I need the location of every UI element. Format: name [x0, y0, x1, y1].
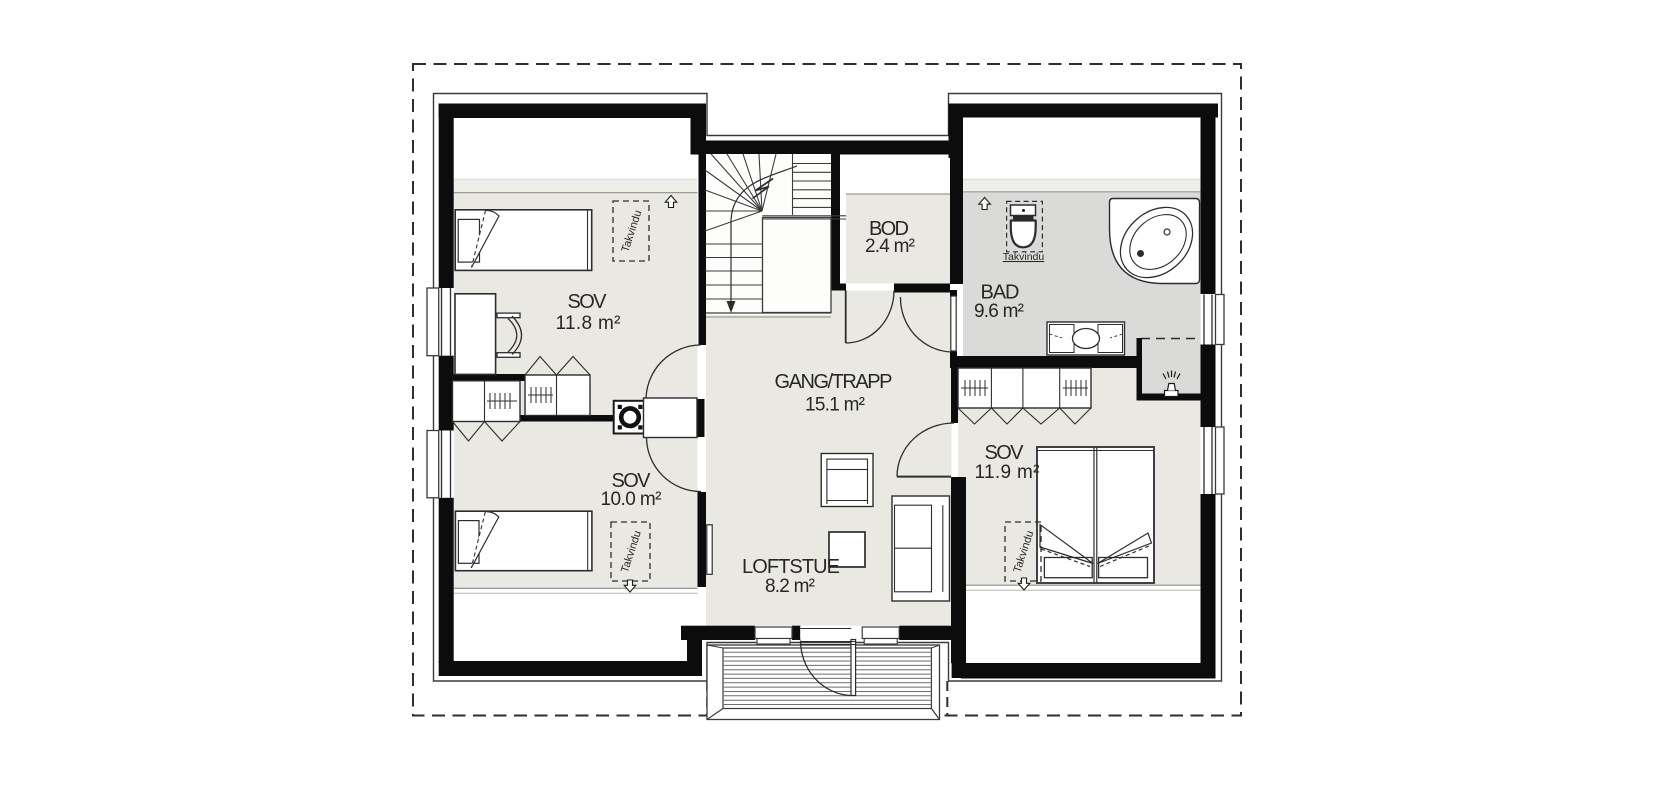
svg-text:8.2 m²: 8.2 m² [765, 576, 815, 597]
svg-text:LOFTSTUE: LOFTSTUE [742, 556, 840, 578]
svg-text:SOV: SOV [568, 291, 608, 313]
svg-text:10.0 m²: 10.0 m² [601, 489, 662, 510]
svg-text:SOV: SOV [985, 442, 1025, 464]
svg-text:9.6 m²: 9.6 m² [974, 301, 1024, 322]
svg-text:2.4 m²: 2.4 m² [865, 236, 915, 257]
svg-text:15.1 m²: 15.1 m² [805, 395, 865, 416]
svg-text:11.8 m²: 11.8 m² [556, 313, 621, 334]
svg-text:11.9 m²: 11.9 m² [975, 462, 1040, 483]
svg-text:GANG/TRAPP: GANG/TRAPP [775, 371, 893, 393]
svg-text:Takvindu: Takvindu [1003, 251, 1045, 263]
